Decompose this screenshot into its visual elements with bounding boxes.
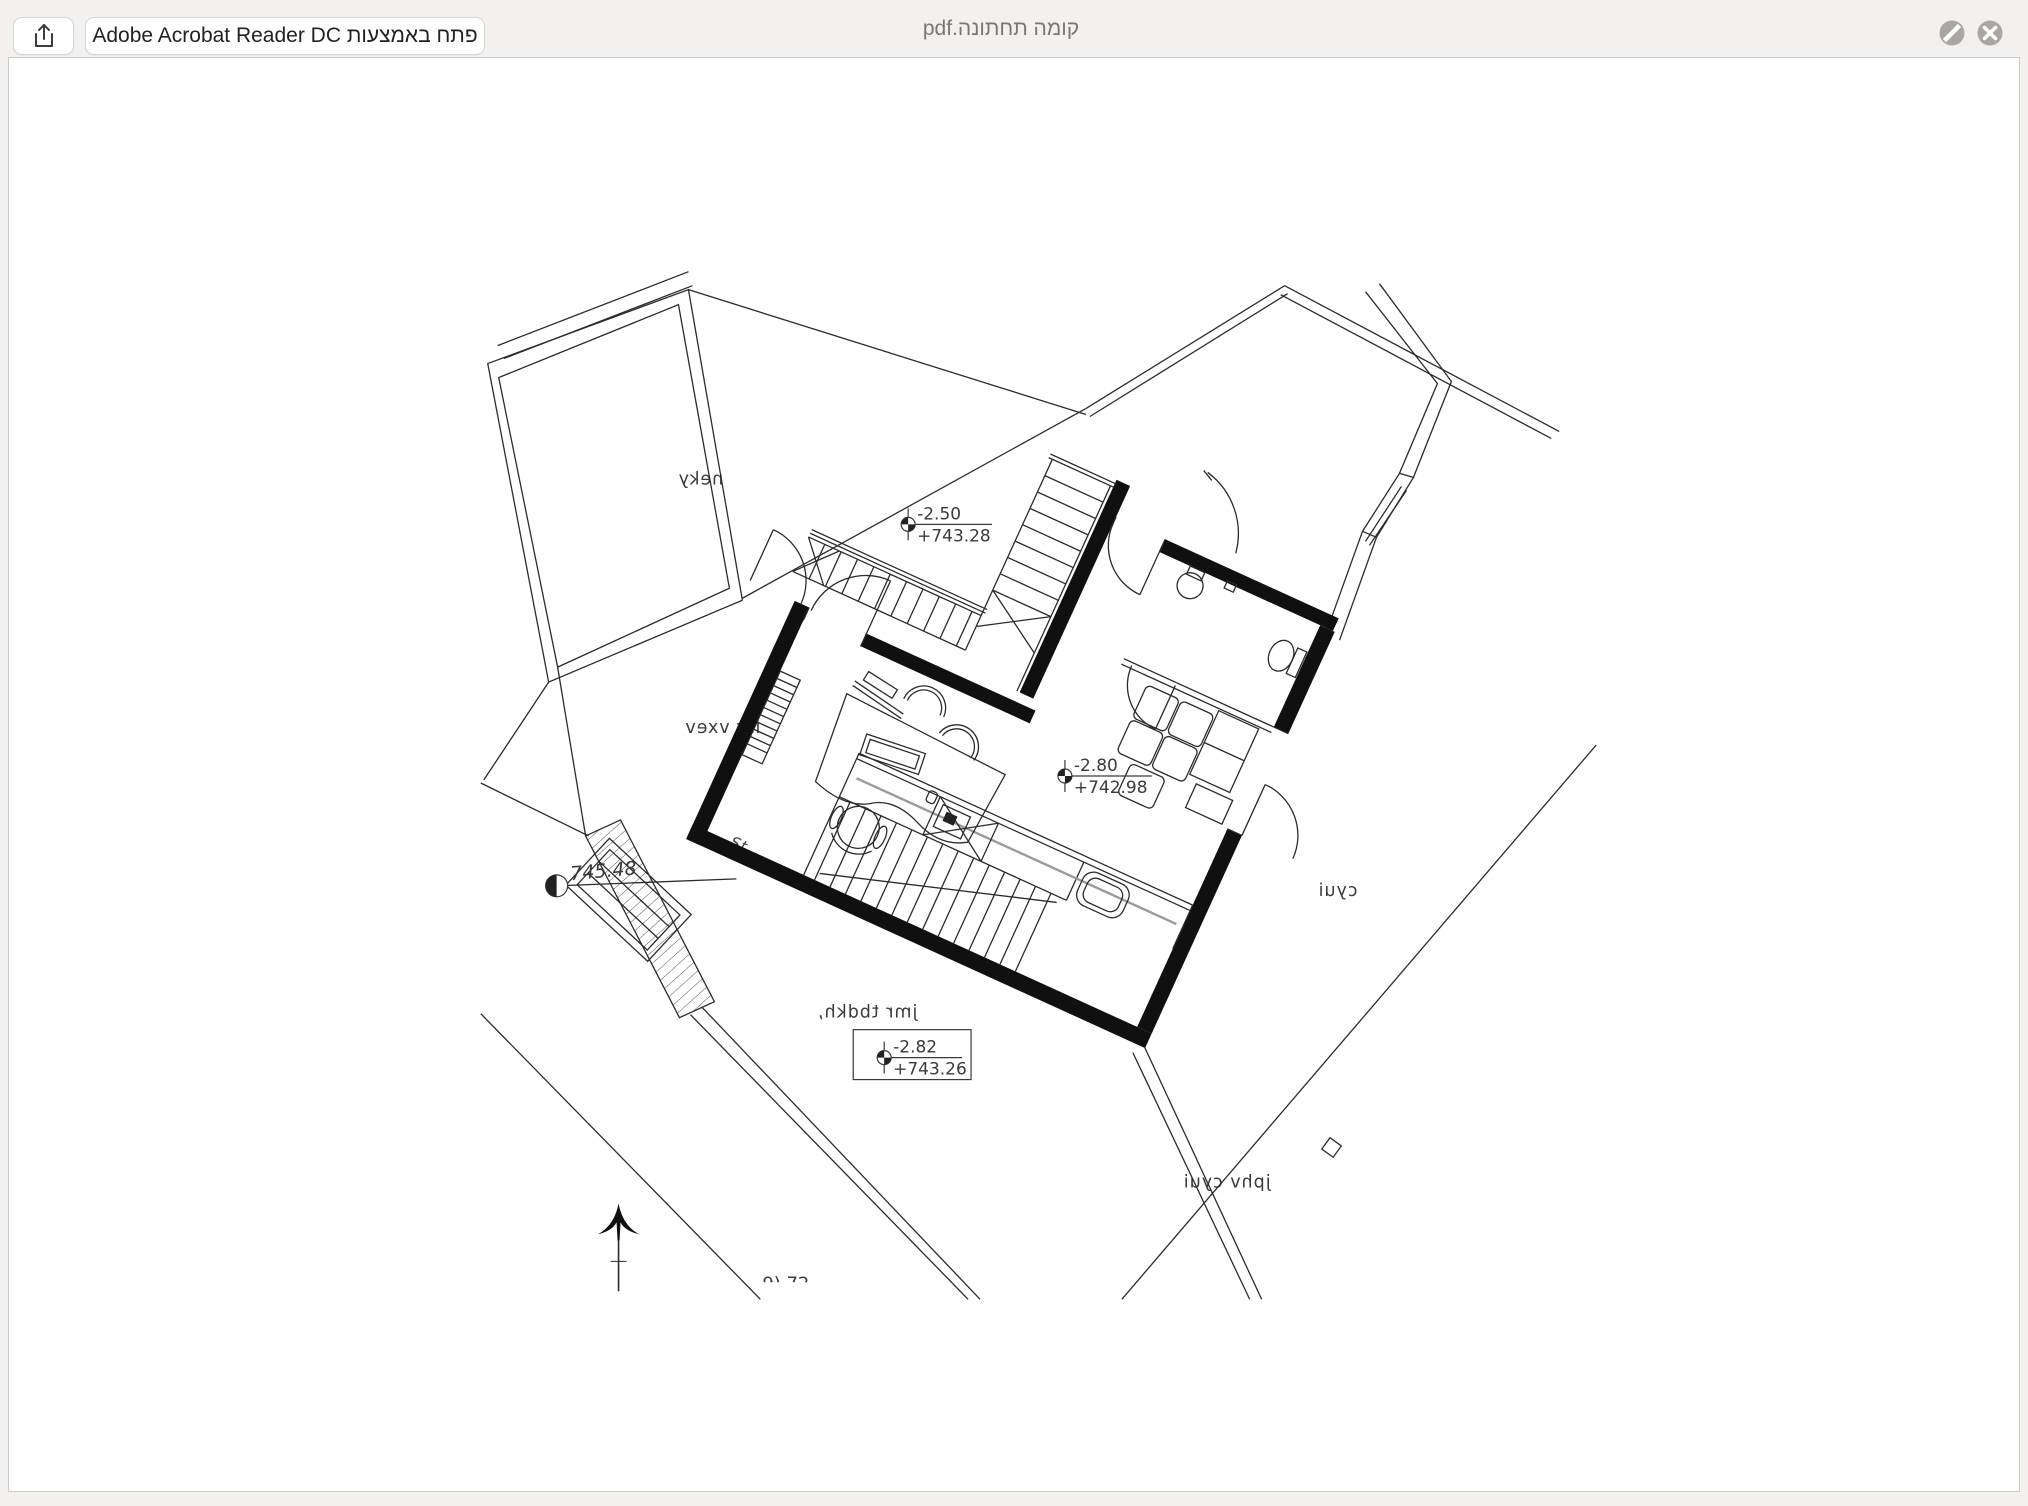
- share-icon: [32, 22, 56, 50]
- partial-bottom-text: 9) 72: [762, 1273, 809, 1294]
- main-unit: [642, 359, 1406, 1071]
- quicklook-window: פתח באמצעות Adobe Acrobat Reader DC קומה…: [0, 0, 2028, 1506]
- door-arc: [1208, 472, 1239, 553]
- basin: [1073, 868, 1133, 921]
- site-linework: [481, 272, 1596, 1300]
- level-annotation: -2.80 +742.98: [1058, 756, 1152, 798]
- hatched-wall-strip: [586, 820, 715, 1018]
- thick-walls: [686, 379, 1354, 1048]
- level-annotation-boxed: -2.82 +743.26: [853, 1030, 971, 1080]
- slash-circle-icon[interactable]: [1940, 21, 1965, 46]
- sink: [1173, 569, 1207, 603]
- north-arrow: [598, 1203, 640, 1291]
- level-absolute: +742.98: [1074, 778, 1148, 798]
- close-icon[interactable]: [1978, 21, 2003, 46]
- room-label-top-room: neky: [678, 469, 724, 489]
- share-button[interactable]: [13, 17, 74, 55]
- document-title: קומה תחתונה.pdf: [923, 0, 1079, 57]
- window-glazing: [1370, 490, 1407, 545]
- pdf-preview-area: neky isr vxev jmr tbdkh, cyui jphv cyui …: [8, 57, 2020, 1492]
- sofa-group: [1101, 679, 1264, 838]
- handrail-line: [856, 778, 1176, 924]
- level-absolute: +743.28: [917, 526, 991, 546]
- level-annotation: -2.50 +743.28: [901, 504, 992, 546]
- level-relative: -2.50: [917, 504, 961, 524]
- room-label-road: cyui: [1318, 881, 1358, 901]
- titlebar: פתח באמצעות Adobe Acrobat Reader DC קומה…: [0, 0, 2028, 57]
- level-absolute: +743.26: [893, 1060, 967, 1080]
- survey-marker: [1322, 1138, 1342, 1158]
- mouse: [925, 790, 938, 805]
- level-relative: -2.82: [893, 1038, 937, 1058]
- room-label-family-room: jmr tbdkh,: [817, 1003, 918, 1023]
- window-controls: [1936, 19, 2008, 47]
- level-relative: -2.80: [1074, 756, 1118, 776]
- floor-plan-svg: neky isr vxev jmr tbdkh, cyui jphv cyui …: [9, 58, 2019, 1491]
- open-with-button[interactable]: פתח באמצעות Adobe Acrobat Reader DC: [85, 17, 485, 55]
- road-edge: [1122, 745, 1596, 1299]
- toilet: [1264, 636, 1299, 675]
